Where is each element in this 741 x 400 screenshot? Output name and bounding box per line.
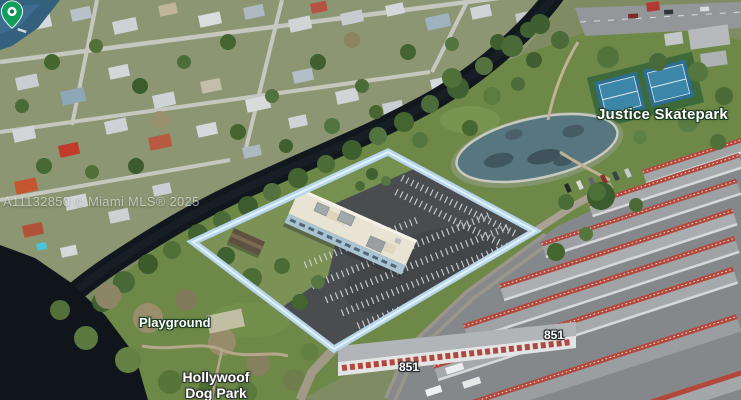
- park-pin-icon: [0, 0, 24, 30]
- label-playground: Playground: [139, 315, 211, 330]
- label-dog-park-line1: Hollywoof: [183, 369, 250, 385]
- label-justice-skatepark: Justice Skatepark: [597, 106, 728, 123]
- label-dog-park: Hollywoof Dog Park: [176, 369, 256, 400]
- label-dog-park-line2: Dog Park: [185, 385, 246, 400]
- label-address-851-rear: 851: [544, 328, 564, 342]
- mls-watermark: A11132850 © Miami MLS® 2025: [3, 194, 200, 209]
- map-label-layer: A11132850 © Miami MLS® 2025 Justice Skat…: [0, 0, 741, 400]
- aerial-listing-photo: A11132850 © Miami MLS® 2025 Justice Skat…: [0, 0, 741, 400]
- label-address-851-front: 851: [399, 360, 419, 374]
